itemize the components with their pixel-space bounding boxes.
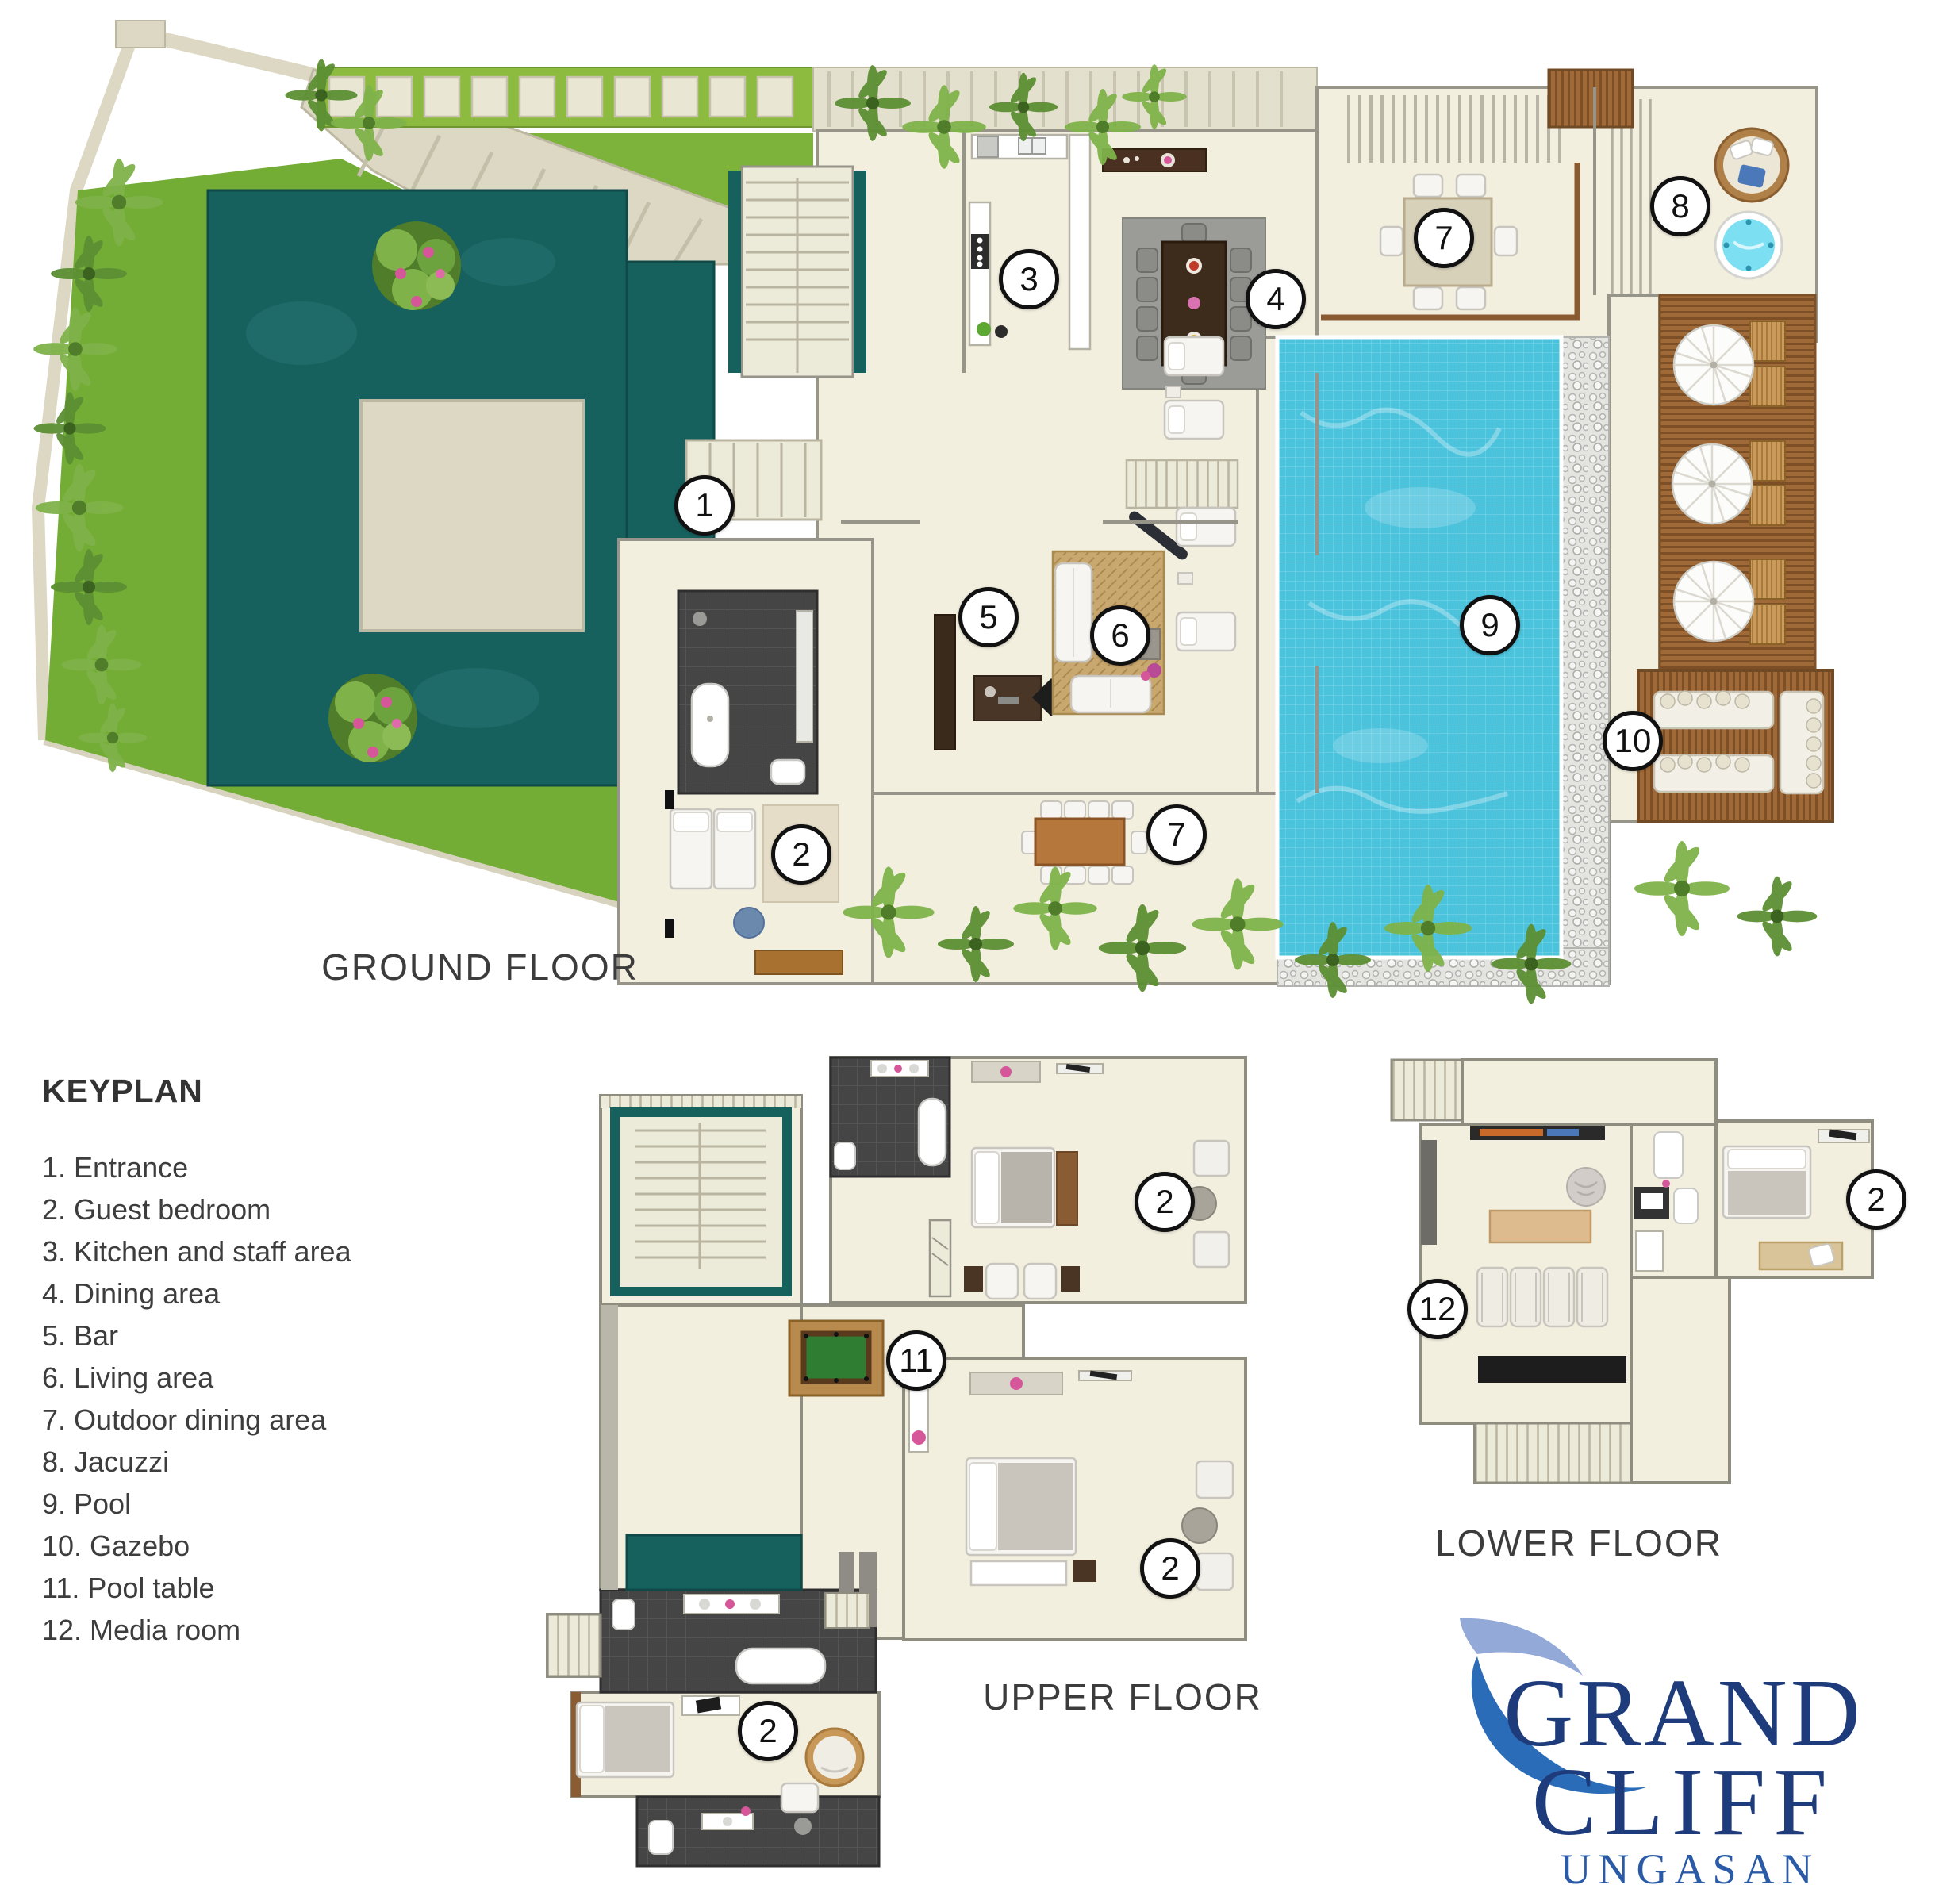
ground-floor-label: GROUND FLOOR — [282, 946, 678, 988]
gazebo — [1638, 670, 1833, 821]
keyplan: KEYPLAN 1. Entrance2. Guest bedroom3. Ki… — [42, 1073, 351, 1651]
keyplan-item-1: 1. Entrance — [42, 1146, 351, 1188]
keyplan-item-11: 11. Pool table — [42, 1567, 351, 1609]
page: { "keyplan": { "heading": "KEYPLAN", "it… — [0, 0, 1935, 1904]
keyplan-item-3: 3. Kitchen and staff area — [42, 1230, 351, 1273]
keyplan-item-2: 2. Guest bedroom — [42, 1188, 351, 1230]
keyplan-item-8: 8. Jacuzzi — [42, 1441, 351, 1483]
pool-table — [789, 1321, 883, 1395]
lower-floor-plan — [1392, 1060, 1872, 1483]
flower-bush — [372, 221, 461, 310]
keyplan-item-9: 9. Pool — [42, 1483, 351, 1525]
pool — [1277, 337, 1609, 986]
keyplan-item-10: 10. Gazebo — [42, 1525, 351, 1567]
keyplan-heading: KEYPLAN — [42, 1073, 351, 1110]
ground-floor-plan — [33, 21, 1833, 1004]
upper-floor-label: UPPER FLOOR — [936, 1676, 1309, 1718]
logo-cliff: CLIFF — [1532, 1749, 1835, 1856]
keyplan-item-4: 4. Dining area — [42, 1273, 351, 1315]
lower-floor-label: LOWER FLOOR — [1392, 1522, 1765, 1564]
sun-deck — [1660, 295, 1815, 670]
keyplan-list: 1. Entrance2. Guest bedroom3. Kitchen an… — [42, 1146, 351, 1651]
keyplan-item-7: 7. Outdoor dining area — [42, 1399, 351, 1441]
keyplan-item-6: 6. Living area — [42, 1357, 351, 1399]
keyplan-item-5: 5. Bar — [42, 1315, 351, 1357]
keyplan-item-12: 12. Media room — [42, 1609, 351, 1651]
flower-bush — [328, 674, 417, 762]
upper-floor-plan — [547, 1058, 1246, 1866]
logo-ungasan: UNGASAN — [1560, 1845, 1819, 1893]
logo: GRAND CLIFF UNGASAN — [1460, 1618, 1864, 1893]
